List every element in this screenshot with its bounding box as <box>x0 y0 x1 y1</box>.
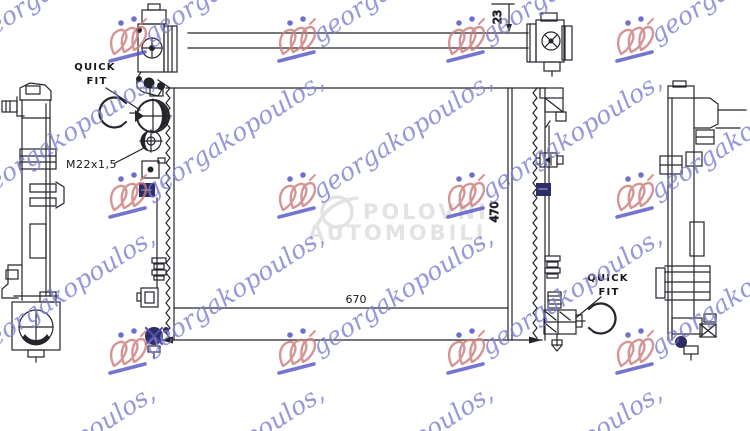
quick-fit-clip-icon <box>589 304 616 334</box>
label-thread-size: M22x1,5 <box>66 148 144 171</box>
radiator-technical-diagram: georgakopoulos, POLOVNI AUTOMOBILI <box>0 0 750 431</box>
quick-fit-left-line1: QUICK <box>74 62 115 73</box>
thread-size-text: M22x1,5 <box>66 158 117 171</box>
leader-line <box>115 148 144 163</box>
top-view-right-mount <box>527 13 572 76</box>
quick-fit-left-line2: FIT <box>87 76 108 87</box>
diagram-canvas: georgakopoulos, POLOVNI AUTOMOBILI <box>0 0 750 431</box>
